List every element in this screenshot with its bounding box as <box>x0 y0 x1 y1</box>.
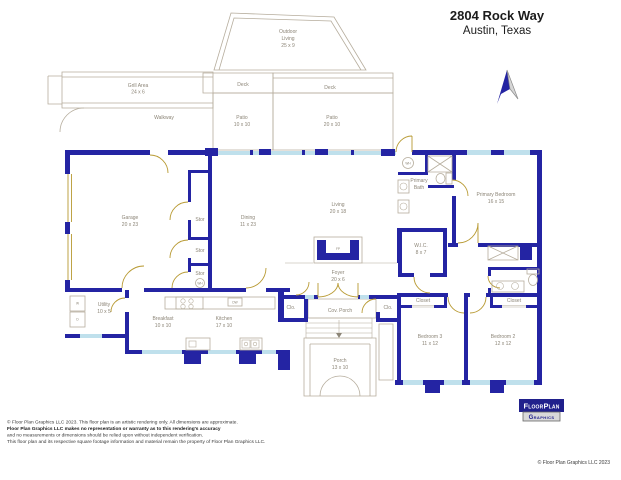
primary-closet-rods <box>488 246 518 260</box>
floor-plan-page: W D DW WH WH FP Outdoor Living 25 x 9 Gr… <box>0 0 621 480</box>
label-primary-bedroom-dims: 16 x 15 <box>488 199 505 205</box>
label-closet-bed3: Closet <box>416 298 431 304</box>
label-closet-bed2: Closet <box>507 298 522 304</box>
label-dining-dims: 11 x 23 <box>240 222 256 228</box>
label-utility-dims: 10 x 5 <box>97 309 111 315</box>
label-primary-bedroom: Primary Bedroom <box>477 192 516 198</box>
label-clo-west: Clo. <box>287 305 296 311</box>
label-outdoor-living-2: Living <box>281 36 294 42</box>
label-bedroom-3-dims: 11 x 12 <box>422 341 438 347</box>
walkway-curve <box>60 108 84 132</box>
label-garage: Garage <box>122 215 139 221</box>
closet-slider-lines <box>412 306 526 308</box>
disclaimer-block: © Floor Plan Graphics LLC 2023. This flo… <box>7 419 265 446</box>
label-outdoor-living-dims: 25 x 9 <box>281 43 295 49</box>
disclaimer-line-2: Floor Plan Graphics LLC makes no represe… <box>7 426 221 432</box>
burner-icon <box>181 304 185 308</box>
outdoor-features <box>48 13 397 396</box>
steps-arrowhead <box>336 333 342 338</box>
footer-copyright: © Floor Plan Graphics LLC 2023 <box>538 459 611 466</box>
floorplan-graphics-logo: FloorPlan Graphics <box>519 399 564 421</box>
label-deck-east: Deck <box>324 85 336 91</box>
room-labels: Outdoor Living 25 x 9 Grill Area 24 x 6 … <box>97 29 522 371</box>
label-deck-west: Deck <box>237 82 249 88</box>
label-foyer: Foyer <box>332 270 345 276</box>
label-bedroom-3: Bedroom 3 <box>418 334 443 340</box>
sink-basin <box>242 340 250 348</box>
dryer-label: D <box>76 318 79 322</box>
burner-icon <box>181 299 185 303</box>
planter-outline <box>379 324 393 380</box>
sink-primary-1 <box>400 183 407 190</box>
label-patio-east: Patio <box>326 115 338 121</box>
label-stor-1: Stor <box>195 217 205 223</box>
island-sink <box>189 341 196 347</box>
label-breakfast-dims: 10 x 10 <box>155 323 172 329</box>
toilet-bowl-primary <box>436 174 445 184</box>
logo-bottom-text: Graphics <box>529 415 555 421</box>
label-living: Living <box>331 202 344 208</box>
label-bedroom-2: Bedroom 2 <box>491 334 516 340</box>
label-porch-dims: 13 x 10 <box>332 365 349 371</box>
label-kitchen-dims: 17 x 10 <box>216 323 233 329</box>
label-primary-bath: Primary <box>410 178 428 184</box>
dishwasher-label: DW <box>232 301 237 305</box>
walls <box>65 148 542 393</box>
sink-primary-2 <box>400 203 407 210</box>
water-heater-label: WH <box>405 162 411 166</box>
vanity-primary-2 <box>398 200 409 213</box>
label-grill-area: Grill Area <box>128 83 149 89</box>
label-bedroom-2-dims: 12 x 12 <box>495 341 512 347</box>
label-stor-2: Stor <box>195 248 205 254</box>
logo-top-text: FloorPlan <box>523 402 559 411</box>
water-heater-label: WH <box>197 282 203 286</box>
label-kitchen: Kitchen <box>216 316 233 322</box>
sink-basin <box>251 340 259 348</box>
label-wic: W.I.C. <box>414 243 428 249</box>
label-garage-dims: 20 x 23 <box>122 222 139 228</box>
page-title: 2804 Rock Way <box>450 8 545 23</box>
disclaimer-line-1: © Floor Plan Graphics LLC 2023. This flo… <box>7 419 238 426</box>
label-walkway: Walkway <box>154 115 174 121</box>
page-subtitle: Austin, Texas <box>463 25 531 37</box>
burner-icon <box>189 304 193 308</box>
label-wic-dims: 8 x 7 <box>416 250 427 256</box>
label-patio-east-dims: 20 x 10 <box>324 122 341 128</box>
label-outdoor-living: Outdoor <box>279 29 297 35</box>
vanity-primary-1 <box>398 180 409 193</box>
burner-icon <box>189 299 193 303</box>
disclaimer-line-4: This floor plan and its respective squar… <box>7 439 265 445</box>
label-utility: Utility <box>98 302 111 308</box>
toilet-bowl-hall <box>529 275 538 286</box>
washer-label: W <box>76 302 79 306</box>
hall-bath-sink-2 <box>512 283 519 290</box>
sink-drain <box>244 342 248 346</box>
wall-posts <box>184 148 532 393</box>
kitchen-island <box>186 338 210 350</box>
fireplace-label: FP <box>336 247 340 251</box>
toilet-tank-primary <box>446 173 452 184</box>
label-primary-bath-2: Bath <box>414 185 425 191</box>
label-stor-3: Stor <box>195 271 205 277</box>
label-cov-porch: Cov. Porch <box>328 308 353 314</box>
label-grill-area-dims: 24 x 6 <box>131 90 145 96</box>
north-arrow-icon <box>497 70 518 104</box>
label-porch: Porch <box>333 358 346 364</box>
shower <box>428 156 452 172</box>
label-breakfast: Breakfast <box>152 316 174 322</box>
label-foyer-dims: 20 x 6 <box>331 277 345 283</box>
label-dining: Dining <box>241 215 255 221</box>
disclaimer-line-3: and no measurements or dimensions should… <box>7 433 203 439</box>
label-living-dims: 20 x 18 <box>330 209 347 215</box>
label-clo-east: Clo. <box>384 305 393 311</box>
floor-plan-canvas: W D DW WH WH FP Outdoor Living 25 x 9 Gr… <box>0 0 621 480</box>
sink-drain <box>253 342 257 346</box>
label-patio-west-dims: 10 x 10 <box>234 122 251 128</box>
label-patio-west: Patio <box>236 115 248 121</box>
